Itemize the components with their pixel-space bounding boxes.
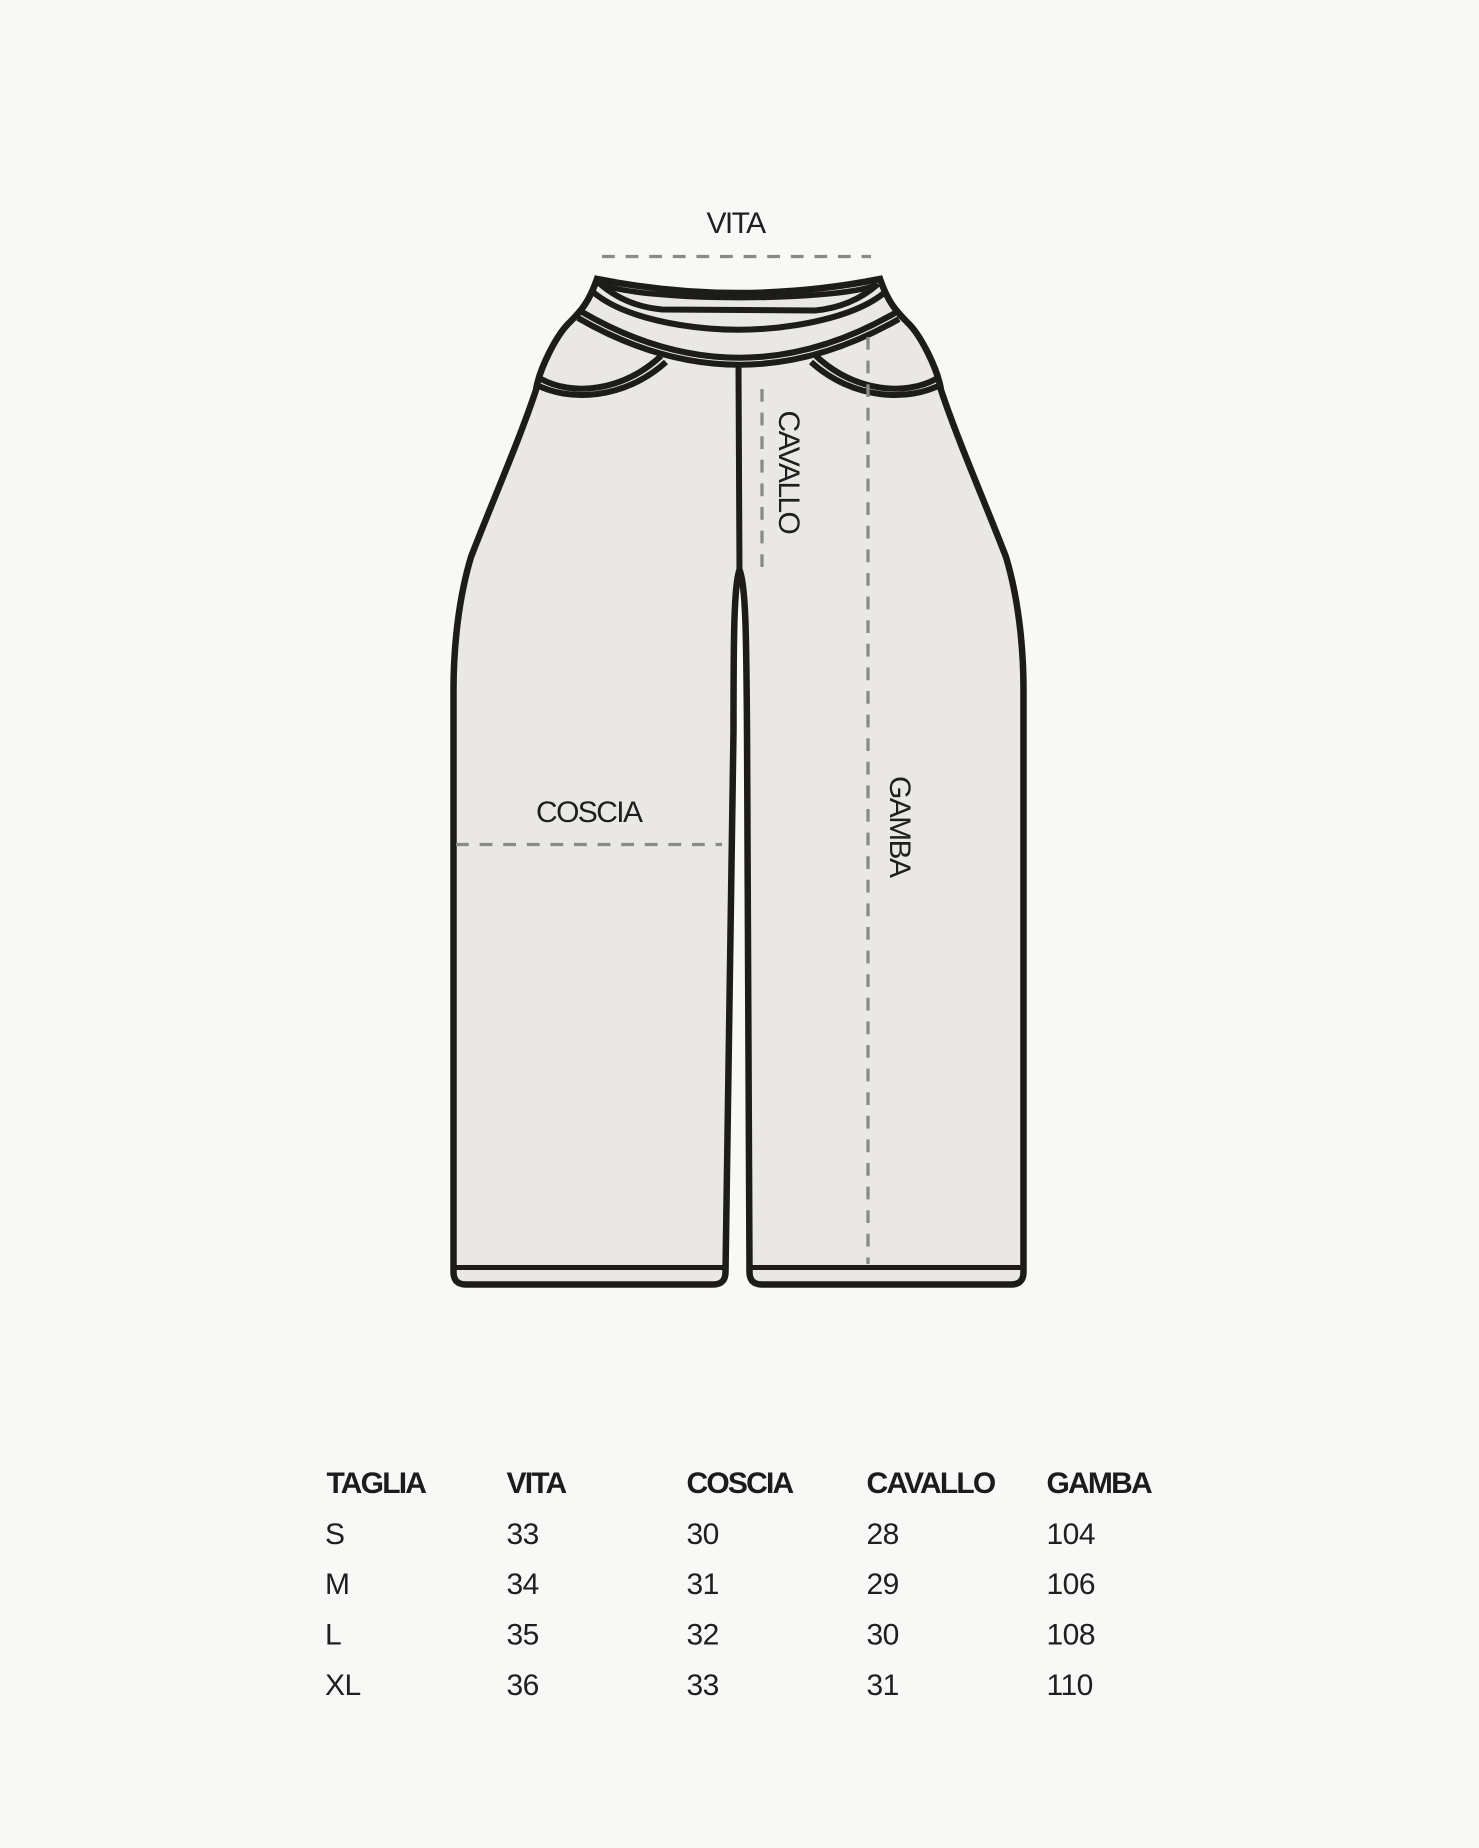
svg-text:M: M: [325, 1568, 350, 1601]
svg-text:30: 30: [687, 1518, 719, 1551]
svg-text:36: 36: [507, 1669, 539, 1702]
svg-text:110: 110: [1047, 1669, 1093, 1702]
svg-text:30: 30: [867, 1619, 899, 1652]
svg-text:L: L: [325, 1619, 341, 1652]
svg-text:28: 28: [867, 1518, 899, 1551]
svg-text:TAGLIA: TAGLIA: [327, 1467, 427, 1500]
svg-text:CAVALLO: CAVALLO: [867, 1467, 996, 1500]
svg-text:34: 34: [507, 1568, 539, 1601]
svg-text:VITA: VITA: [706, 207, 766, 240]
svg-text:COSCIA: COSCIA: [687, 1467, 794, 1500]
svg-text:S: S: [325, 1518, 345, 1551]
svg-text:GAMBA: GAMBA: [883, 776, 916, 878]
svg-text:31: 31: [867, 1669, 899, 1702]
svg-text:106: 106: [1047, 1568, 1096, 1601]
svg-text:29: 29: [867, 1568, 899, 1601]
svg-text:COSCIA: COSCIA: [536, 796, 643, 829]
svg-text:32: 32: [687, 1619, 719, 1652]
svg-text:VITA: VITA: [507, 1467, 567, 1500]
svg-text:33: 33: [687, 1669, 719, 1702]
svg-text:108: 108: [1047, 1619, 1096, 1652]
svg-text:104: 104: [1047, 1518, 1096, 1551]
svg-text:33: 33: [507, 1518, 539, 1551]
svg-text:XL: XL: [325, 1669, 361, 1702]
svg-text:CAVALLO: CAVALLO: [772, 411, 805, 534]
svg-text:31: 31: [687, 1568, 719, 1601]
svg-text:GAMBA: GAMBA: [1047, 1467, 1152, 1500]
svg-text:35: 35: [507, 1619, 539, 1652]
